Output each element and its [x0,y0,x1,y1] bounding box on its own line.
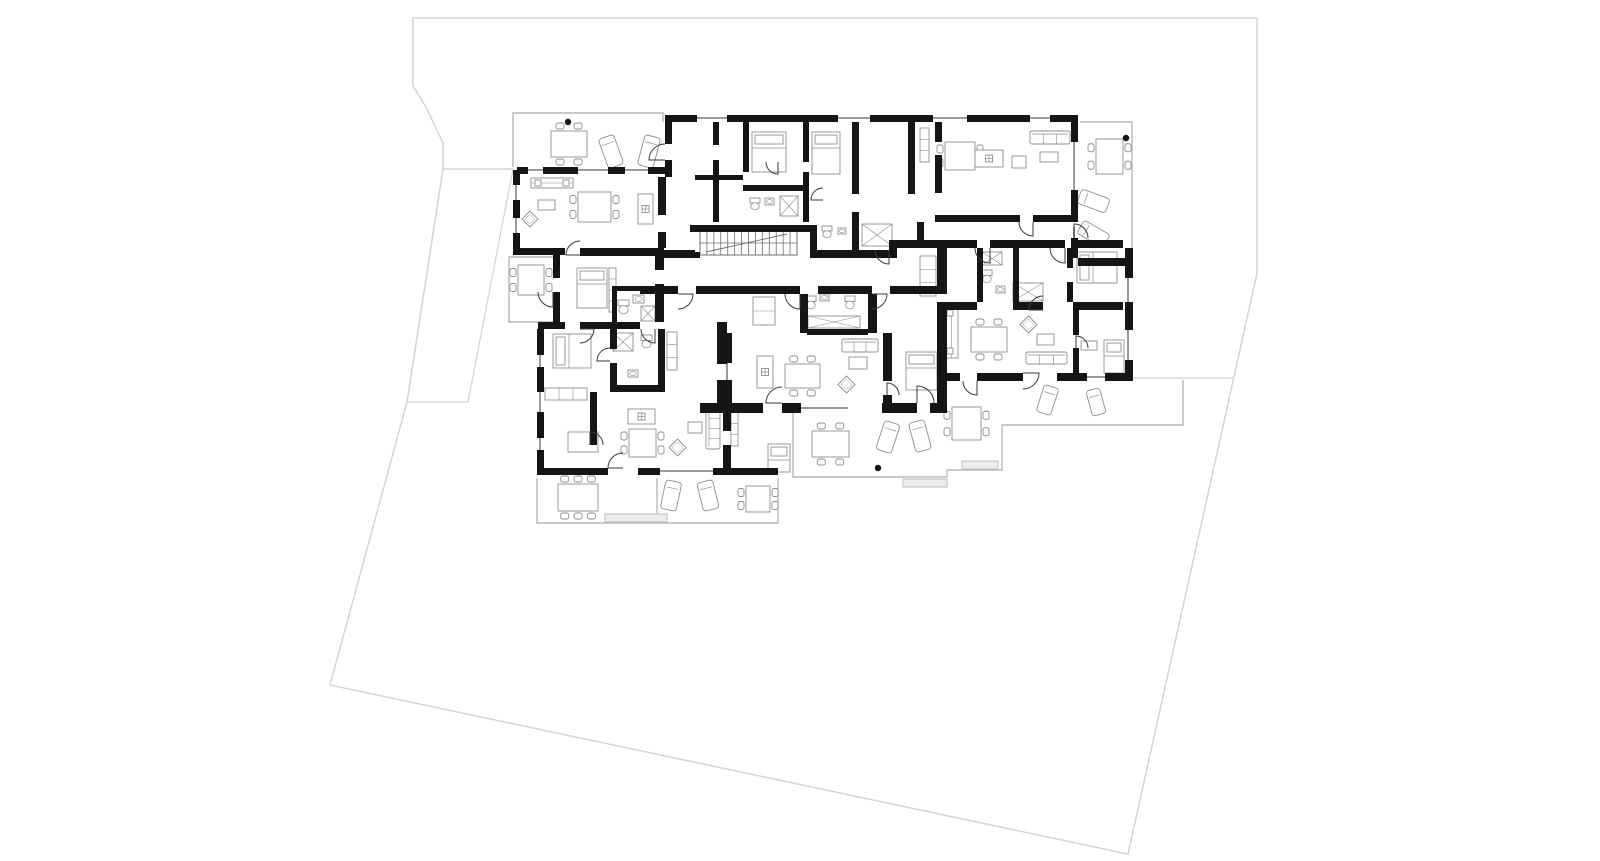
floor-plan-page [0,0,1600,861]
floor-plan [0,0,1600,861]
staircase [700,231,797,255]
